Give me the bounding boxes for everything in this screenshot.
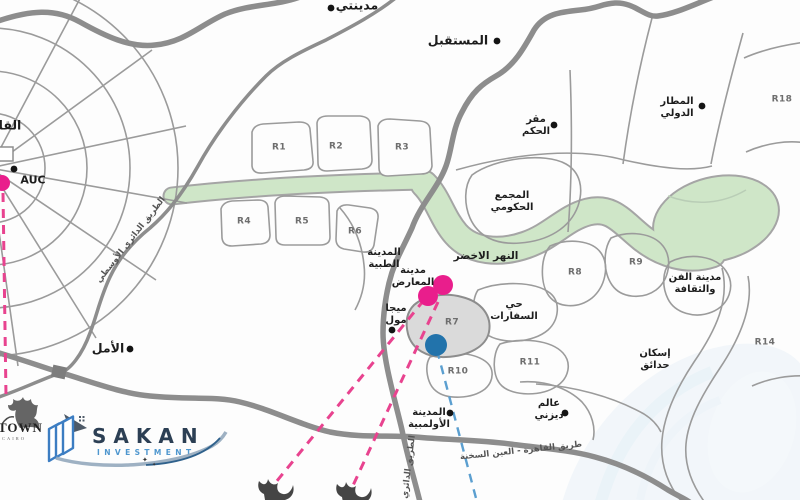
- location-dot: [551, 122, 558, 129]
- location-dot: [328, 5, 335, 12]
- uptown-logo-subtitle: CAIRO: [2, 436, 26, 441]
- location-dot: [127, 346, 134, 353]
- callout-line-magenta: [272, 300, 424, 487]
- location-dot: [389, 327, 396, 334]
- watermark-lion: [560, 344, 800, 500]
- highlight-marker-blue: [425, 334, 447, 356]
- partner-emblem-icon: [336, 482, 371, 500]
- sparkle-icon: ✦: [152, 462, 156, 468]
- sparkle-icon: ✦: [142, 456, 148, 464]
- location-dot: [562, 410, 569, 417]
- sakan-swoosh-icon: [46, 406, 236, 474]
- sakan-investment-logo: SAKAN INVESTMENT ✦ ✦: [46, 406, 236, 474]
- callout-line-blue: [437, 350, 477, 500]
- location-dot: [699, 103, 706, 110]
- highlight-marker-magenta: [418, 286, 438, 306]
- uptown-logo-title: TOWN: [0, 420, 43, 436]
- location-dot: [11, 166, 18, 173]
- map-screenshot: مدينتيالمستقبلالقاAUCالأملالطريق الدائري…: [0, 0, 800, 500]
- location-dot: [494, 38, 501, 45]
- location-dot: [447, 410, 454, 417]
- callout-line-magenta: [3, 193, 6, 396]
- partner-emblem-icon: [258, 479, 293, 500]
- highlight-marker-magenta: [0, 175, 10, 191]
